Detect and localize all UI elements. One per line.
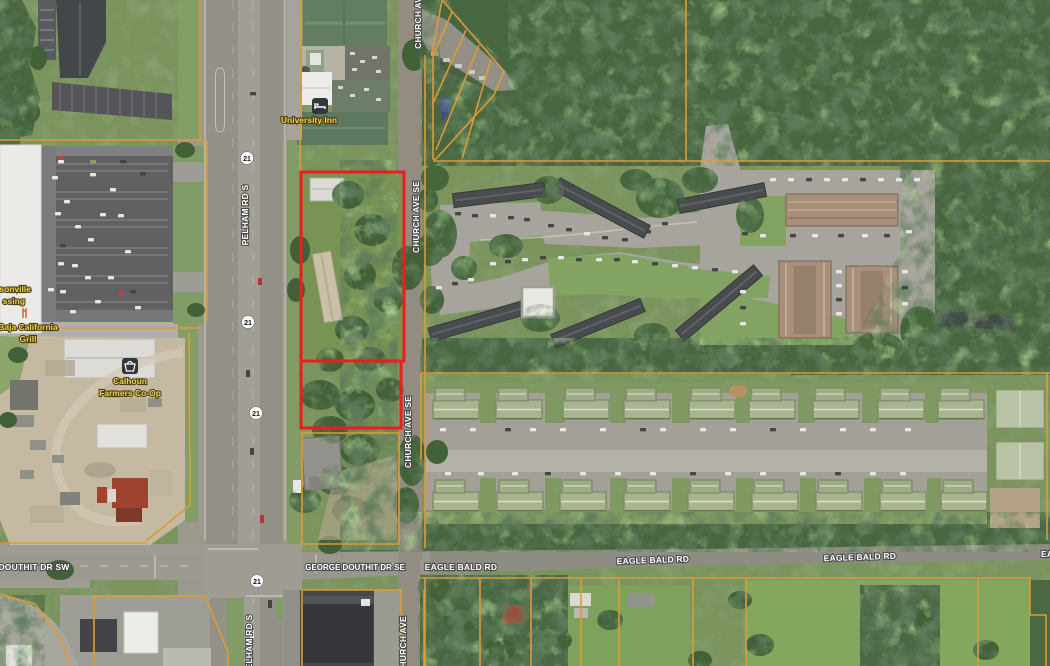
svg-text:21: 21 xyxy=(252,411,260,418)
svg-text:Baja California: Baja California xyxy=(0,322,58,332)
svg-text:ssing: ssing xyxy=(3,296,25,306)
svg-text:CHURCH AVE: CHURCH AVE xyxy=(398,616,408,666)
svg-text:EAGLE BALD RD: EAGLE BALD RD xyxy=(425,562,498,572)
svg-text:CHURCH AVE: CHURCH AVE xyxy=(413,0,423,49)
svg-text:PELHAM RD S: PELHAM RD S xyxy=(244,614,254,666)
svg-text:Grill: Grill xyxy=(19,334,36,344)
svg-text:21: 21 xyxy=(243,156,251,163)
svg-text:GEORGE DOUTHIT DR SE: GEORGE DOUTHIT DR SE xyxy=(305,563,405,572)
svg-text:University Inn: University Inn xyxy=(281,115,337,125)
svg-text:Farmers Co-Op: Farmers Co-Op xyxy=(99,388,161,398)
svg-text:sonville: sonville xyxy=(0,284,31,294)
svg-text:Calhoun: Calhoun xyxy=(113,376,147,386)
svg-text:CHURCH AVE SE: CHURCH AVE SE xyxy=(411,181,421,253)
svg-text:EAGLE: EAGLE xyxy=(1041,549,1050,559)
svg-text:21: 21 xyxy=(244,320,252,327)
svg-text:21: 21 xyxy=(253,579,261,586)
svg-text:DOUTHIT DR SW: DOUTHIT DR SW xyxy=(0,562,70,572)
svg-text:CHURCH AVE SE: CHURCH AVE SE xyxy=(403,396,413,468)
svg-text:PELHAM RD S: PELHAM RD S xyxy=(240,184,250,245)
